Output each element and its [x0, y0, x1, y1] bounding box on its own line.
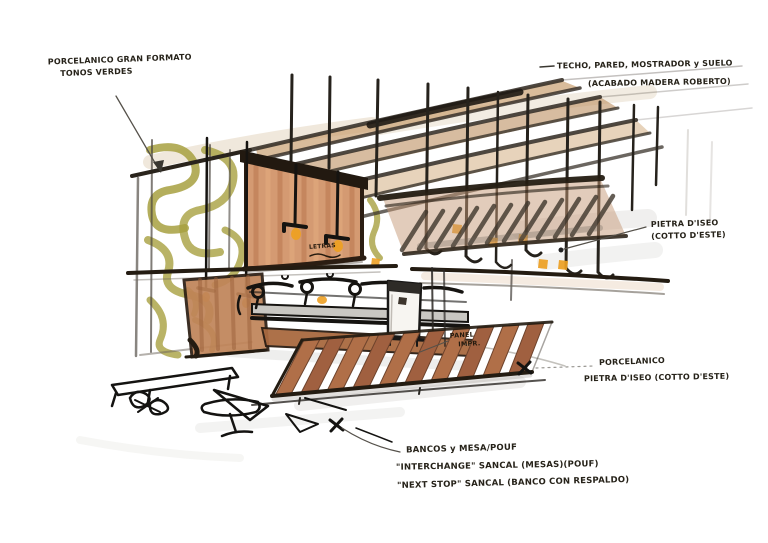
wood-panel: [240, 150, 368, 272]
annotation-panel-line1: PANEL: [450, 331, 475, 340]
sketch-canvas: PORCELANICO GRAN FORMATO TONOS VERDES TE…: [0, 0, 768, 543]
annotation-panel-line2: IMPR.: [458, 339, 481, 349]
annotation-top-right-line2: (ACABADO MADERA ROBERTO): [588, 76, 731, 90]
annotation-bottom-right-line1: PORCELANICO: [599, 355, 665, 369]
leader-top-left: [116, 96, 158, 168]
leader-top-right-dash: [540, 66, 554, 67]
leader-bottom: [342, 428, 400, 452]
annotation-right-line1: PIETRA D'ISEO: [651, 218, 719, 229]
annotation-panel-label: PANEL IMPR.: [450, 330, 481, 350]
annotation-right: PIETRA D'ISEO (COTTO D'ESTE): [651, 217, 726, 243]
annotation-bottom-right-line2: PIETRA D'ISEO (COTTO D'ESTE): [584, 371, 729, 386]
annotation-top-left: PORCELANICO GRAN FORMATO TONOS VERDES: [48, 51, 193, 80]
leader-right-dot: [559, 248, 564, 253]
annotation-right-line2: (COTTO D'ESTE): [651, 229, 726, 243]
annotation-letters-label: LETRAS: [309, 240, 337, 254]
